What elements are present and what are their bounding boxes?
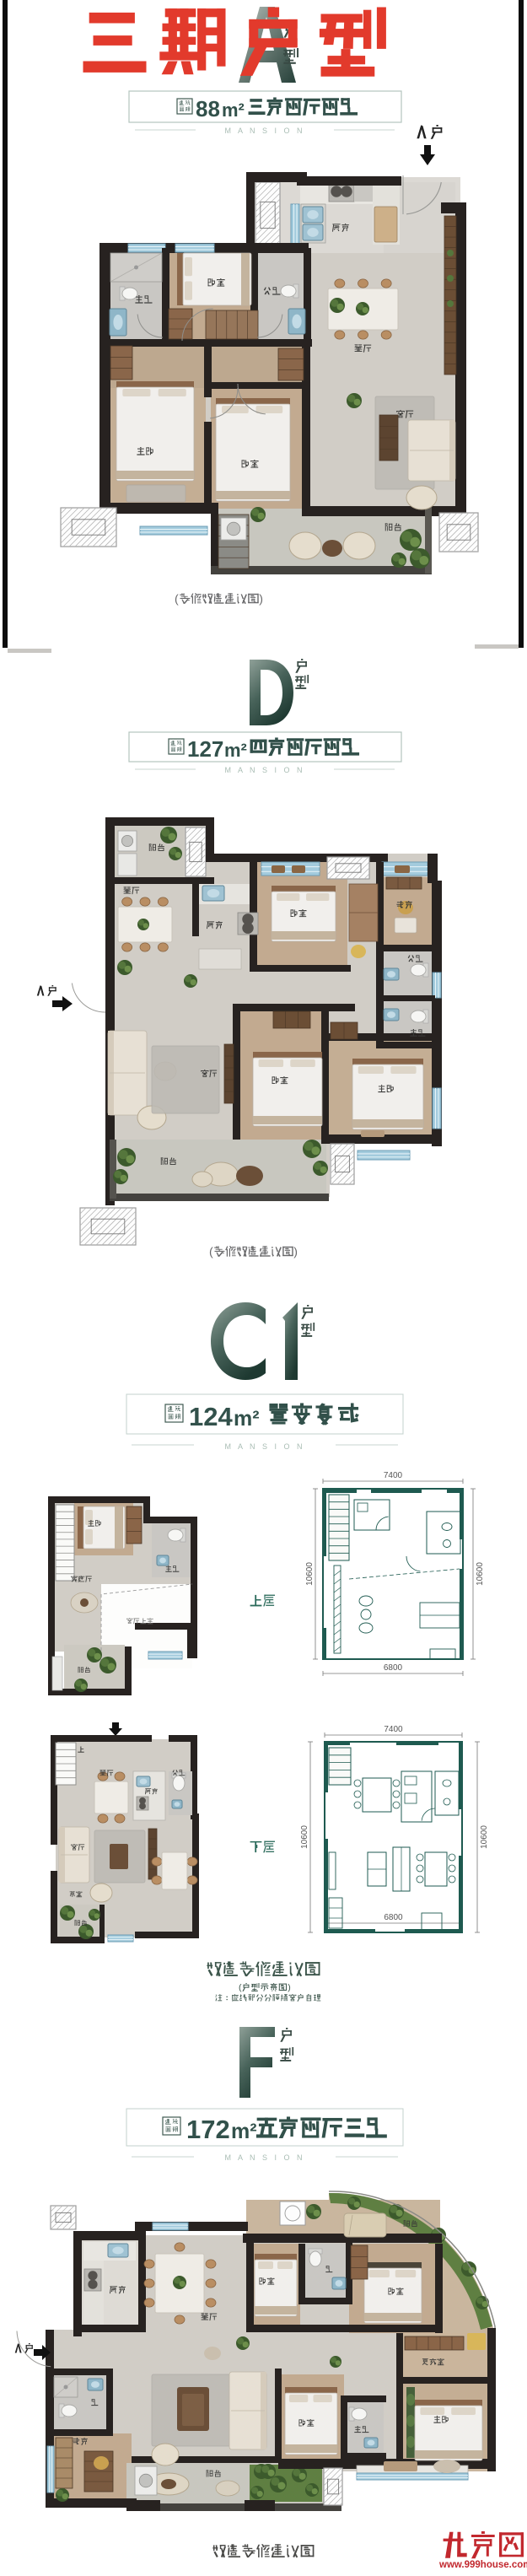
svg-text:88: 88	[196, 96, 220, 121]
svg-text:10600: 10600	[476, 1562, 485, 1586]
svg-text:172: 172	[186, 2115, 230, 2144]
svg-text:127: 127	[187, 736, 223, 762]
svg-text:7400: 7400	[384, 1471, 403, 1480]
svg-text:m²: m²	[224, 740, 247, 761]
svg-text:10600: 10600	[300, 1825, 309, 1849]
svg-text:(: (	[209, 1246, 213, 1259]
svg-text:(: (	[175, 593, 179, 606]
svg-text:6800: 6800	[384, 1663, 403, 1673]
svg-text:m²: m²	[222, 100, 245, 121]
svg-text:M A N S I O N: M A N S I O N	[224, 2153, 304, 2162]
svg-text:M A N S I O N: M A N S I O N	[224, 127, 304, 135]
svg-text:7400: 7400	[384, 1725, 403, 1734]
svg-text:M A N S I O N: M A N S I O N	[224, 766, 304, 774]
svg-text:): )	[259, 593, 263, 606]
svg-text:M A N S I O N: M A N S I O N	[224, 1442, 304, 1451]
svg-text:6800: 6800	[384, 1913, 403, 1922]
svg-text:124: 124	[189, 1402, 233, 1431]
svg-text:10600: 10600	[480, 1825, 489, 1849]
svg-text:10600: 10600	[305, 1562, 315, 1586]
svg-text:): )	[288, 1983, 291, 1993]
svg-text:): )	[293, 1246, 298, 1259]
svg-text:m²: m²	[234, 1407, 260, 1431]
svg-text:www.999house.com: www.999house.com	[438, 2560, 527, 2570]
svg-text:(: (	[239, 1983, 242, 1993]
svg-text:m²: m²	[231, 2120, 257, 2143]
